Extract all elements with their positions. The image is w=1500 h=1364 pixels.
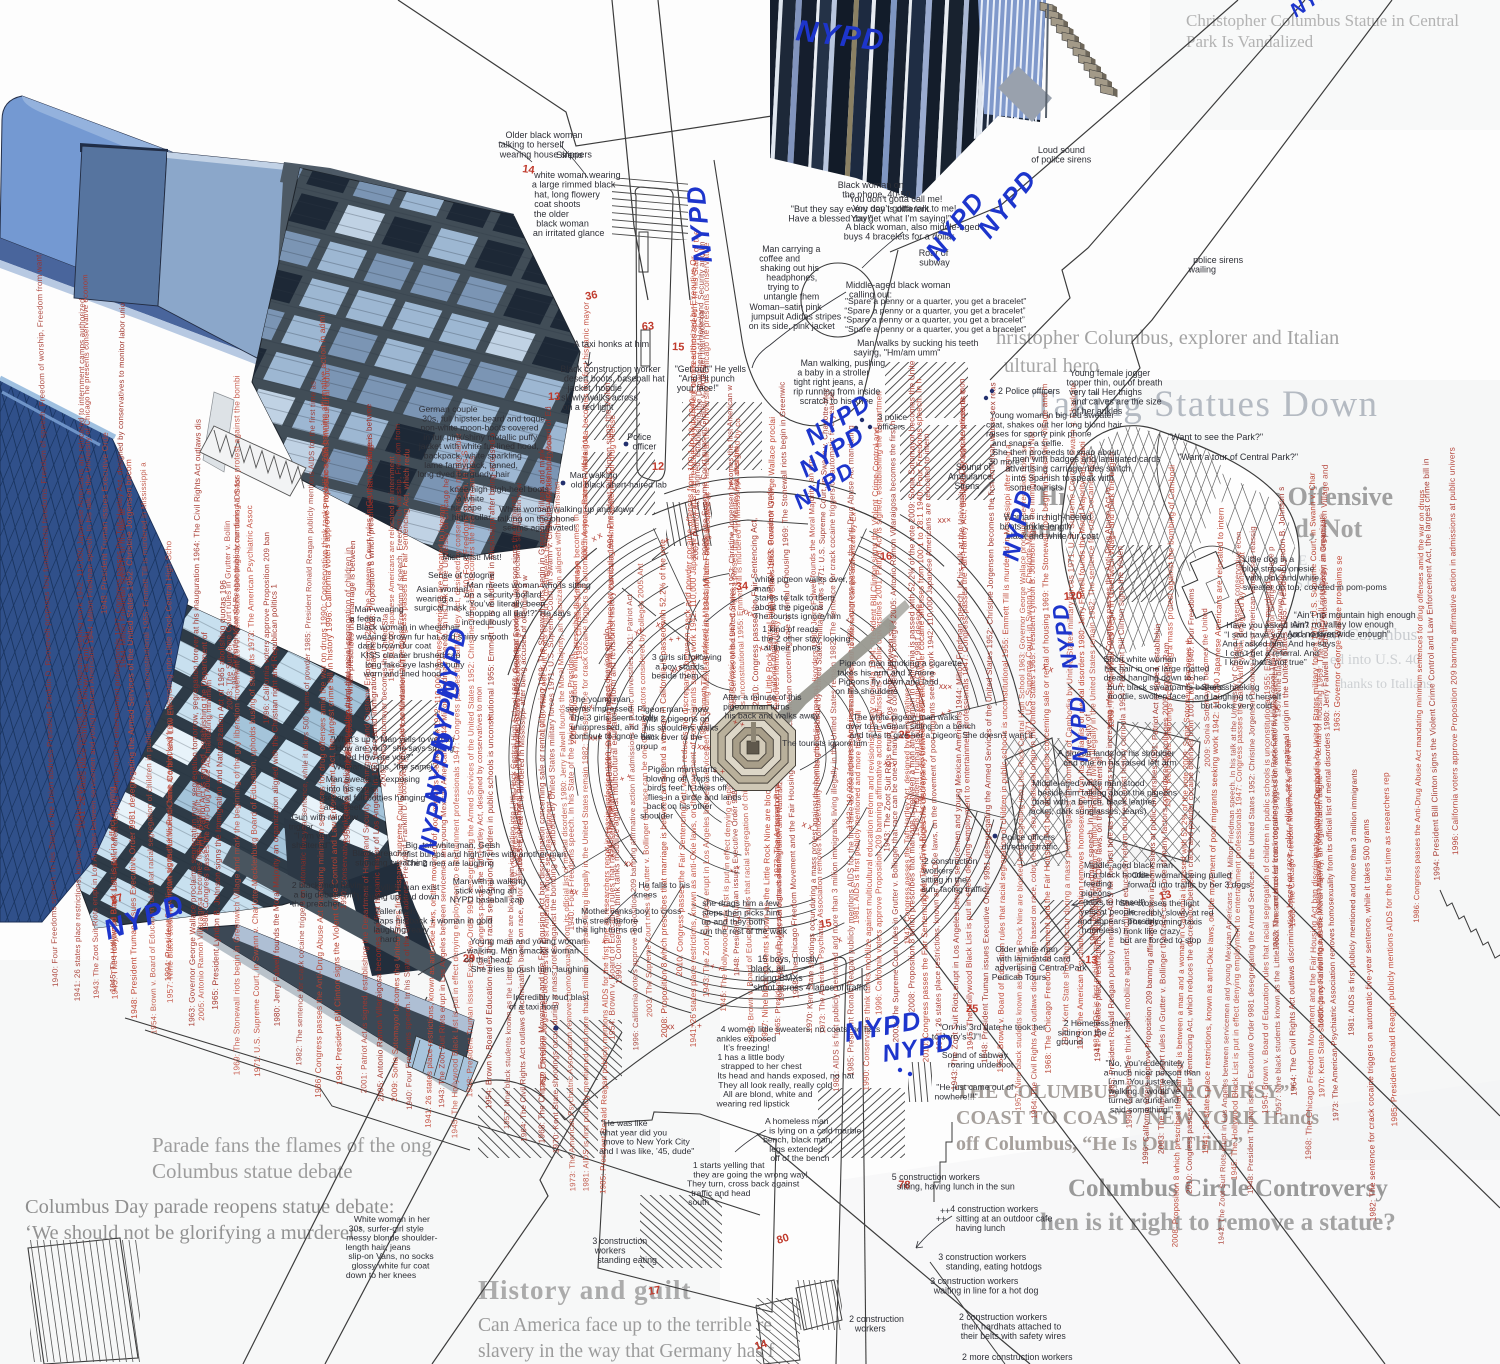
svg-text:Mist! Mist! Mist!: Mist! Mist! Mist! xyxy=(442,552,501,562)
svg-text:white pigeon walks over,mansta: white pigeon walks over,manstares to tal… xyxy=(754,574,848,621)
svg-text:1948: President Truman issues: 1948: President Truman issues Executive … xyxy=(99,432,110,614)
svg-text:13: 13 xyxy=(1085,954,1098,967)
svg-text:34: 34 xyxy=(736,580,750,593)
svg-text:xx×: xx× xyxy=(938,515,952,525)
svg-text:3 policeofficers: 3 policeofficers xyxy=(878,412,908,431)
svg-text:"Want to see the Park?": "Want to see the Park?" xyxy=(1168,432,1263,442)
svg-text:Columbus Circle Controversy: Columbus Circle Controversy xyxy=(1068,1175,1388,1202)
svg-text:++: ++ xyxy=(936,1214,946,1224)
svg-text:hristopher Columbus, explorer: hristopher Columbus, explorer and Italia… xyxy=(996,327,1339,349)
svg-text:she drags him a fewsteps then: she drags him a fewsteps then picks himu… xyxy=(700,898,788,936)
svg-text:25: 25 xyxy=(966,1003,978,1015)
svg-text:Park Is Vandalized: Park Is Vandalized xyxy=(1186,32,1314,51)
svg-text:1980: Jerry Falwell founds the: 1980: Jerry Falwell founds the Moral Maj… xyxy=(1315,775,1325,1027)
svg-text:"Want a tour of Central Park?": "Want a tour of Central Park?" xyxy=(1178,452,1298,462)
svg-text:1982: The sentence for crack c: 1982: The sentence for crack cocaine tri… xyxy=(1270,633,1281,951)
svg-text:A taxi honks at him: A taxi honks at him xyxy=(574,339,650,349)
svg-text:Columbus statue debate: Columbus statue debate xyxy=(152,1159,353,1183)
svg-text:slavery in the way that German: slavery in the way that Germany has f xyxy=(478,1341,775,1362)
svg-text:"Spare a penny or a quarter, y: "Spare a penny or a quarter, you get a b… xyxy=(841,296,1026,334)
svg-text:Man with a walkingstick wearin: Man with a walkingstick wearing anNYPD b… xyxy=(450,876,526,905)
svg-text:15: 15 xyxy=(672,341,685,353)
svg-text:ed into U.S. 40: ed into U.S. 40 xyxy=(1330,652,1420,668)
svg-text:120: 120 xyxy=(1063,590,1082,603)
svg-text:Man carrying acoffee andshakin: Man carrying acoffee andshaking out hish… xyxy=(759,244,820,302)
svg-text:Loud soundof police sirens: Loud soundof police sirens xyxy=(1031,145,1092,165)
svg-text:Sense of cologne: Sense of cologne xyxy=(428,570,495,580)
svg-text:Can America face up to the ter: Can America face up to the terrible re xyxy=(478,1315,772,1336)
svg-text:36: 36 xyxy=(584,289,598,303)
svg-text:xx×: xx× xyxy=(938,681,952,692)
svg-text:13: 13 xyxy=(548,391,560,403)
svg-text:Parade fans the flames of the: Parade fans the flames of the ong xyxy=(152,1133,432,1157)
svg-text:The tourists ignore him: The tourists ignore him xyxy=(782,738,867,748)
svg-text:+ +: + + xyxy=(668,633,682,645)
svg-text:Christopher Columbus Statue in: Christopher Columbus Statue in Central xyxy=(1186,11,1459,30)
svg-text:1996: California voters approv: 1996: California voters approve Proposit… xyxy=(262,532,271,724)
svg-text:+ +: + + xyxy=(689,1020,702,1031)
svg-text:16: 16 xyxy=(880,551,893,563)
svg-text:63: 63 xyxy=(642,320,655,333)
svg-text:The civilian man existjumping: The civilian man existjumping up and dow… xyxy=(357,882,440,901)
svg-text:Police officersdirecting traff: Police officersdirecting traffic xyxy=(1002,832,1058,851)
svg-text:2 Police officers: 2 Police officers xyxy=(998,386,1061,396)
svg-text:Columbus Day parade reopens st: Columbus Day parade reopens statue debat… xyxy=(25,1196,394,1218)
svg-text:1996: California voters approv: 1996: California voters approve Proposit… xyxy=(875,391,884,1015)
svg-text:1971: U.S. Supreme Court, in S: 1971: U.S. Supreme Court, in Swann v. Ch… xyxy=(1023,528,1033,739)
svg-text:17: 17 xyxy=(647,1284,661,1298)
svg-text:NYPD: NYPD xyxy=(1065,695,1093,763)
svg-text:Young man and young womanwalki: Young man and young womanwalking. Man sm… xyxy=(464,936,589,974)
svg-text:12: 12 xyxy=(652,461,665,473)
svg-text:xx: xx xyxy=(666,1021,675,1031)
svg-text:2 more construction workers: 2 more construction workers xyxy=(962,1352,1073,1362)
svg-text:1944: Milton Friedman speech.: 1944: Milton Friedman speech. In his tal… xyxy=(118,508,128,668)
svg-text:15: 15 xyxy=(819,917,833,931)
